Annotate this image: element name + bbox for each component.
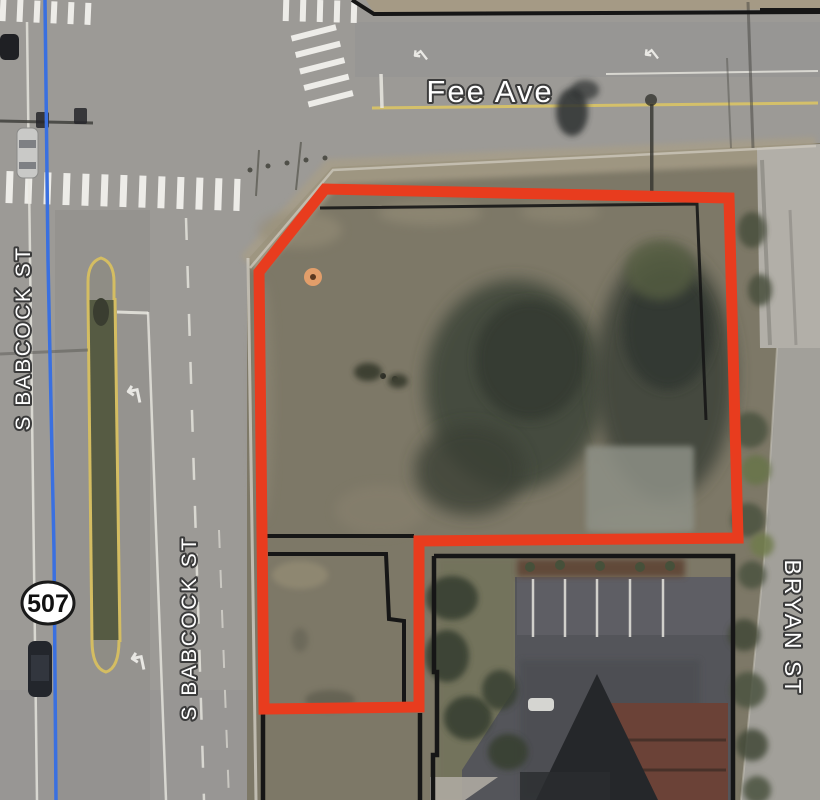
- street-label-babcock-south: S BABCOCK ST: [178, 535, 201, 720]
- street-label-fee-ave: Fee Ave: [426, 74, 553, 109]
- street-label-babcock-north: S BABCOCK ST: [12, 245, 35, 430]
- concrete-pad: [586, 446, 694, 532]
- silver-car: [17, 128, 38, 178]
- route-shield-507: 507: [22, 582, 74, 624]
- street-label-bryan: BRYAN ST: [780, 560, 806, 697]
- site-marker: [304, 268, 322, 286]
- aerial-map-viewport[interactable]: ↰ ↰ ↰ ↰: [0, 0, 820, 800]
- utility-pole: [650, 104, 654, 196]
- dark-car: [0, 34, 19, 60]
- white-car: [528, 698, 554, 711]
- route-shield-number: 507: [27, 590, 69, 618]
- median-island: [88, 258, 120, 672]
- aerial-map: ↰ ↰ ↰ ↰: [0, 0, 820, 800]
